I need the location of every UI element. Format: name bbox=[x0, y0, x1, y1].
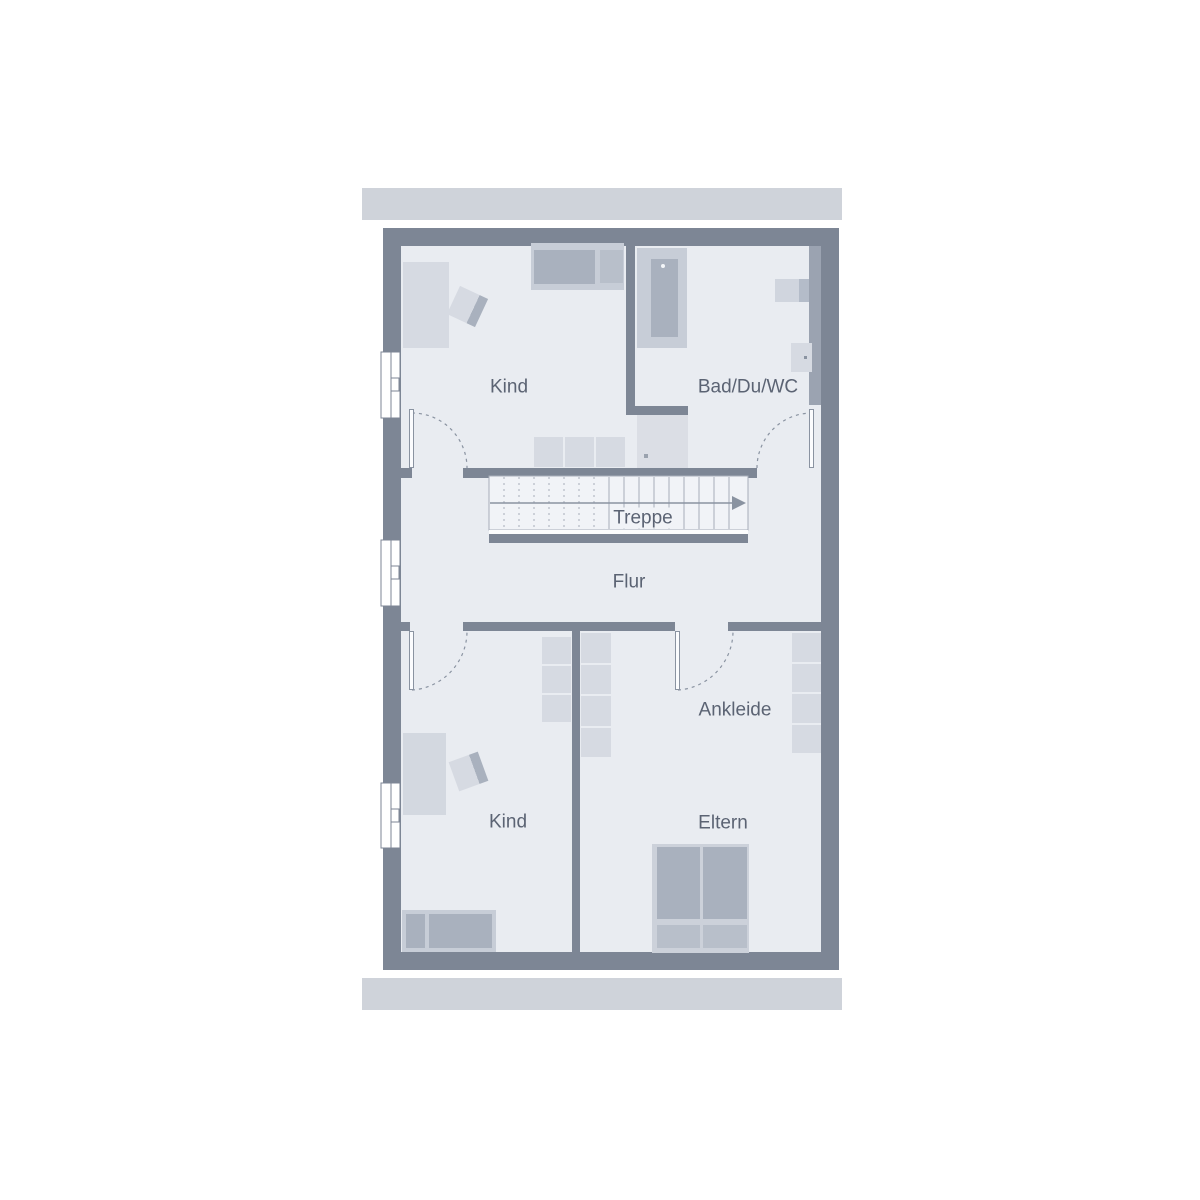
wall-kind-bad bbox=[626, 246, 635, 415]
bed-kind-bottom-mattress bbox=[429, 914, 492, 948]
room-label-flur: Flur bbox=[613, 573, 646, 592]
toilet-dot-icon bbox=[804, 356, 807, 359]
wardrobe-cell bbox=[581, 633, 611, 663]
bed-eltern-mattress-right bbox=[703, 847, 747, 919]
bed-kind-top-mattress bbox=[534, 250, 595, 284]
wall-flur-bottom-right bbox=[728, 622, 821, 631]
desk-kind-top bbox=[403, 262, 449, 348]
sink bbox=[775, 279, 799, 302]
wall-flur-bottom-nub bbox=[401, 622, 410, 631]
floor-plan: Kind Bad/Du/WC Treppe Flur Ankleide Kind… bbox=[0, 0, 1200, 1200]
wardrobe-kind-bottom bbox=[542, 637, 571, 722]
door-leaf-kind-bottom bbox=[409, 631, 414, 690]
shower-drain-icon bbox=[644, 454, 648, 458]
wardrobe-cell bbox=[581, 728, 611, 758]
wardrobe-cell bbox=[542, 666, 571, 693]
bed-kind-top-pillow bbox=[600, 250, 623, 283]
bed-eltern-mattress-left bbox=[657, 847, 700, 919]
wardrobe-cell bbox=[542, 637, 571, 664]
wardrobe-cell bbox=[792, 633, 821, 662]
dresser-kind-top bbox=[534, 437, 625, 467]
wardrobe-cell bbox=[792, 725, 821, 754]
room-label-kind-top: Kind bbox=[490, 378, 528, 397]
room-label-ankleide: Ankleide bbox=[699, 701, 772, 720]
bed-eltern-pillow-left bbox=[657, 925, 700, 948]
wardrobe-ankleide-left bbox=[581, 633, 611, 757]
bed-kind-bottom-pillow bbox=[406, 914, 425, 948]
desk-kind-bottom bbox=[403, 733, 446, 815]
wardrobe-cell bbox=[792, 664, 821, 693]
door-leaf-bad bbox=[809, 409, 814, 468]
wall-stairs-top-left bbox=[401, 468, 412, 478]
wall-divider-bottom-rooms bbox=[572, 622, 580, 952]
installation-wall bbox=[809, 246, 821, 405]
bathtub-basin bbox=[651, 259, 678, 337]
dresser-cell bbox=[534, 437, 563, 467]
bed-eltern-pillow-right bbox=[703, 925, 747, 948]
door-leaf-eltern bbox=[675, 631, 680, 690]
wardrobe-cell bbox=[581, 665, 611, 695]
roof-band-bottom bbox=[362, 978, 842, 1010]
room-label-treppe: Treppe bbox=[610, 508, 676, 529]
roof-band-top bbox=[362, 188, 842, 220]
wardrobe-ankleide-right bbox=[792, 633, 821, 753]
dresser-cell bbox=[565, 437, 594, 467]
sink-counter bbox=[799, 279, 809, 302]
room-label-kind-bottom: Kind bbox=[489, 813, 527, 832]
shower bbox=[637, 415, 688, 468]
floor-area bbox=[401, 246, 821, 952]
bathtub-drain-icon bbox=[661, 264, 665, 268]
room-label-eltern: Eltern bbox=[698, 814, 748, 833]
dresser-cell bbox=[596, 437, 625, 467]
wall-flur-bottom-mid bbox=[463, 622, 675, 631]
wardrobe-cell bbox=[581, 696, 611, 726]
wall-stairs-top-mid bbox=[463, 468, 757, 478]
door-leaf-kind-top bbox=[409, 409, 414, 468]
room-label-bad: Bad/Du/WC bbox=[698, 378, 798, 397]
wardrobe-cell bbox=[792, 694, 821, 723]
wall-bad-stub bbox=[626, 406, 688, 415]
wardrobe-cell bbox=[542, 695, 571, 722]
stairs-bottom-bar bbox=[489, 534, 748, 543]
toilet bbox=[791, 343, 812, 372]
